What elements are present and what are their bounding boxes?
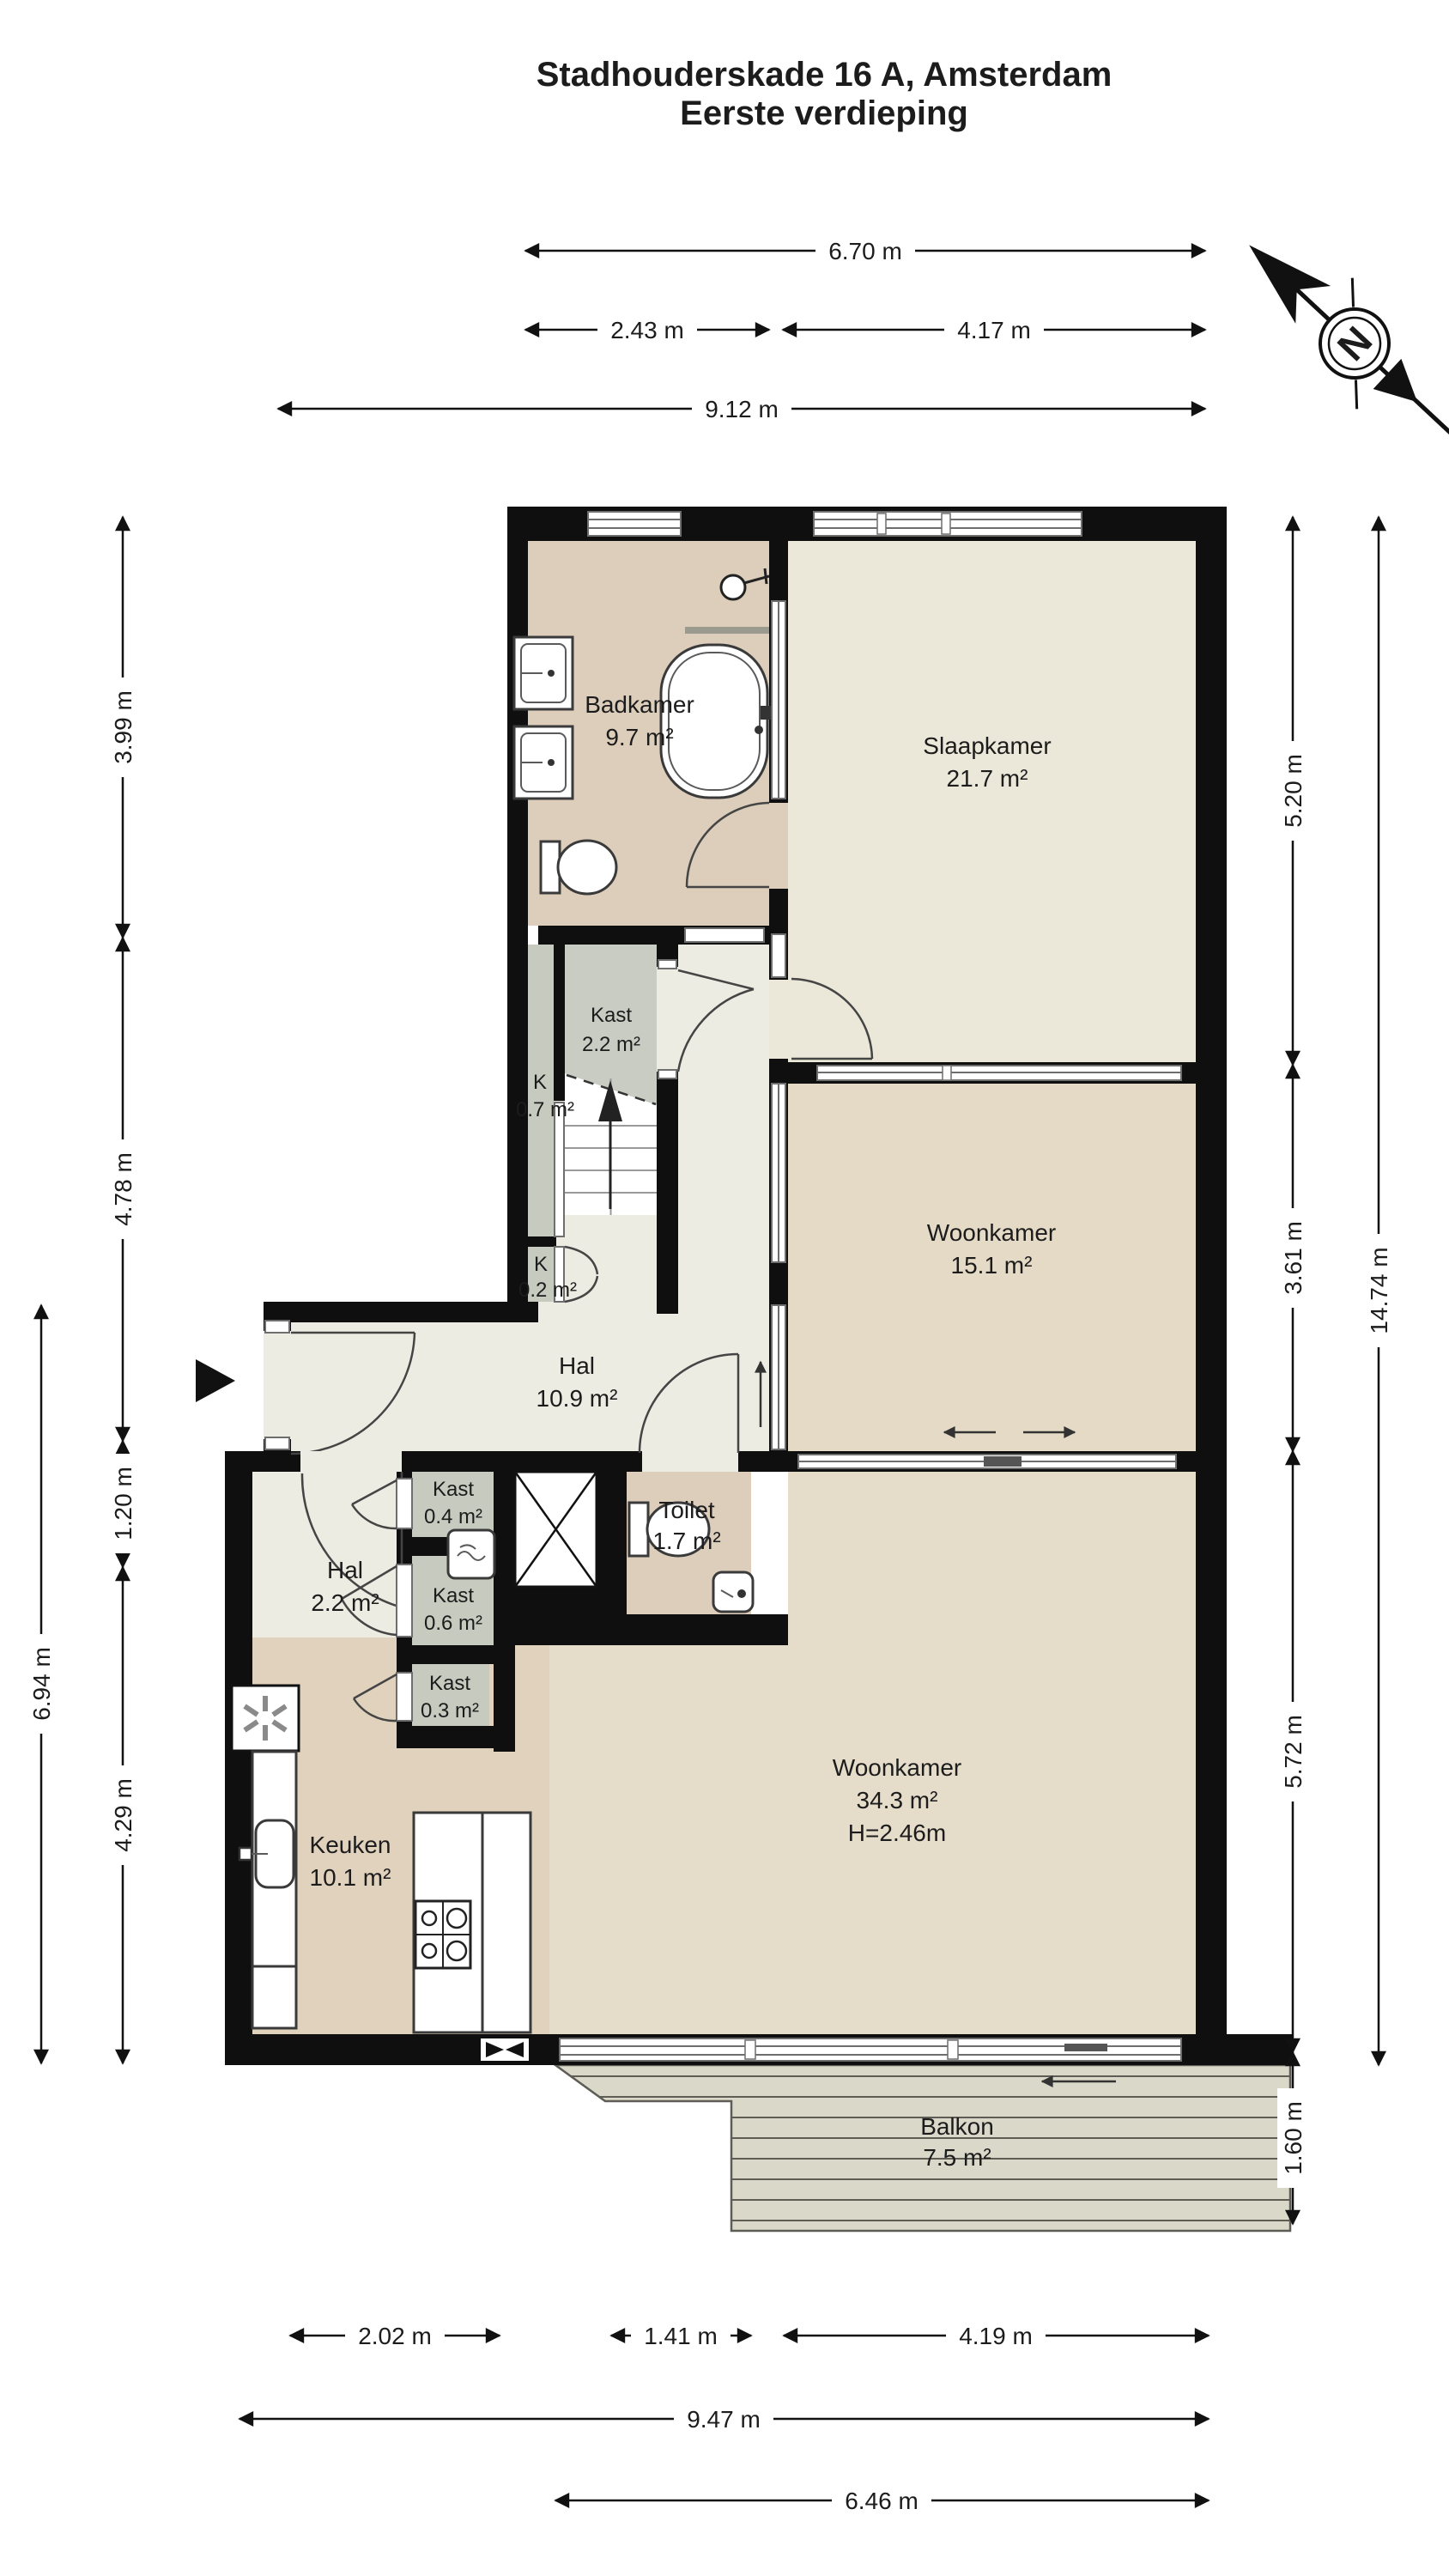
dimension-label: 9.47 m <box>687 2406 761 2433</box>
dimension-label: 4.17 m <box>957 317 1031 343</box>
label-badkamer: Badkamer <box>585 691 694 718</box>
label-kast-03: Kast <box>429 1672 470 1695</box>
dimension-label: 4.19 m <box>959 2323 1033 2349</box>
svg-text:0.6 m²: 0.6 m² <box>424 1612 482 1635</box>
label-k-07: K <box>533 1071 547 1094</box>
dimension-label: 9.12 m <box>705 396 779 422</box>
dimension-label: 1.60 m <box>1280 2101 1307 2175</box>
label-balkon: Balkon <box>920 2113 994 2140</box>
toilet-icon <box>541 841 616 894</box>
dimension-label: 2.02 m <box>358 2323 432 2349</box>
svg-text:2.2 m²: 2.2 m² <box>582 1033 640 1056</box>
dimension-label: 5.72 m <box>1280 1715 1307 1789</box>
window-badkamer <box>588 512 681 536</box>
svg-text:21.7 m²: 21.7 m² <box>947 765 1028 792</box>
fan-icon <box>232 1686 299 1751</box>
bathtub-icon <box>661 645 771 798</box>
svg-text:1.7 m²: 1.7 m² <box>652 1528 720 1554</box>
dimension-label: 6.46 m <box>845 2488 919 2514</box>
dimension-label: 3.99 m <box>110 690 136 764</box>
window-balkon <box>560 2038 1181 2061</box>
floorplan-drawing: Stadhouderskade 16 A, Amsterdam Eerste v… <box>0 0 1449 2576</box>
washbasin-icon <box>514 726 573 799</box>
vent-icon <box>481 2038 529 2061</box>
dimension-label: 5.20 m <box>1280 754 1307 828</box>
label-keuken: Keuken <box>310 1832 391 1858</box>
dimension-label: 6.94 m <box>28 1647 55 1721</box>
svg-text:7.5 m²: 7.5 m² <box>923 2144 991 2171</box>
dimension-label: 4.78 m <box>110 1152 136 1226</box>
kitchen-counter <box>252 1752 296 2028</box>
shaft <box>515 1472 597 1587</box>
title-line1: Stadhouderskade 16 A, Amsterdam <box>537 56 1113 94</box>
label-woonkamer-34: Woonkamer <box>833 1754 961 1781</box>
svg-text:34.3 m²: 34.3 m² <box>857 1787 938 1814</box>
hand-basin-icon <box>713 1572 753 1612</box>
dimension-label: 1.41 m <box>644 2323 718 2349</box>
floorplan-page: Stadhouderskade 16 A, Amsterdam Eerste v… <box>0 0 1449 2576</box>
washbasin-icon <box>514 637 573 709</box>
window-badkamer-internal <box>685 928 764 942</box>
svg-text:0.2 m²: 0.2 m² <box>518 1279 577 1302</box>
room-woonkamer-34-upper <box>788 1472 1196 1645</box>
svg-text:10.9 m²: 10.9 m² <box>537 1385 618 1412</box>
stove-icon <box>415 1901 470 1968</box>
room-slaapkamer <box>788 541 1196 1062</box>
dimension-label: 1.20 m <box>110 1467 136 1540</box>
svg-text:10.1 m²: 10.1 m² <box>310 1864 391 1891</box>
svg-text:0.7 m²: 0.7 m² <box>516 1098 574 1121</box>
boiler-icon <box>448 1530 494 1578</box>
svg-text:9.7 m²: 9.7 m² <box>605 724 673 750</box>
label-woonkamer-15: Woonkamer <box>927 1219 1056 1246</box>
svg-text:0.4 m²: 0.4 m² <box>424 1505 482 1528</box>
stair-glazing <box>555 1103 564 1236</box>
label-k-02: K <box>534 1253 548 1276</box>
label-slaapkamer: Slaapkamer <box>923 732 1051 759</box>
compass-icon: N <box>1217 211 1449 474</box>
window-slaapkamer <box>814 512 1082 536</box>
label-toilet: Toilet <box>658 1497 715 1523</box>
page-title: Stadhouderskade 16 A, Amsterdam Eerste v… <box>537 56 1113 132</box>
svg-text:15.1 m²: 15.1 m² <box>951 1252 1033 1279</box>
title-line2: Eerste verdieping <box>680 94 968 132</box>
svg-text:2.2 m²: 2.2 m² <box>311 1589 379 1616</box>
label-kast-06: Kast <box>433 1584 474 1607</box>
entrance-arrow-icon <box>196 1359 235 1402</box>
dimension-label: 4.29 m <box>110 1778 136 1852</box>
label-kast-22: Kast <box>591 1004 632 1027</box>
dimension-label: 3.61 m <box>1280 1221 1307 1295</box>
dimension-label: 2.43 m <box>610 317 684 343</box>
svg-text:H=2.46m: H=2.46m <box>848 1820 946 1846</box>
dimension-label: 6.70 m <box>828 238 902 264</box>
dimension-label: 14.74 m <box>1366 1247 1392 1334</box>
label-hal-10: Hal <box>559 1352 595 1379</box>
label-hal-2: Hal <box>327 1557 363 1583</box>
svg-text:0.3 m²: 0.3 m² <box>421 1699 479 1722</box>
label-kast-04: Kast <box>433 1478 474 1501</box>
glazed-partition <box>769 601 788 1449</box>
window-slaapkamer-woonkamer <box>817 1066 1181 1080</box>
